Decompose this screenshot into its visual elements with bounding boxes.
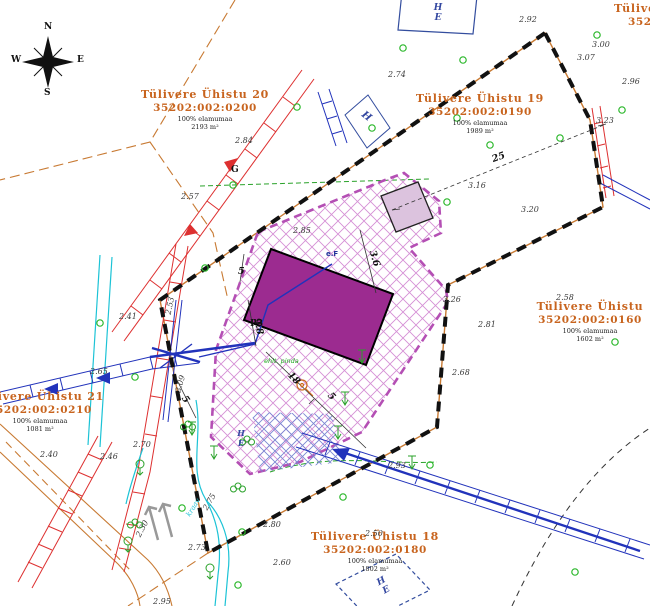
map-labels: N E S W Tülivere Ühistu 20 35202:002:020…: [0, 0, 650, 606]
parcel-name: Tülivere Ühistu 21: [0, 390, 140, 404]
parcel-name: Tülivere Ühistu 20: [120, 88, 290, 102]
elevation-label: 2.57: [181, 192, 199, 201]
elevation-label: 2.73: [188, 543, 206, 552]
parcel-code: 35202:002:0160: [505, 314, 650, 327]
elevation-label: 2.84: [235, 136, 253, 145]
dimension-label: 3.6: [367, 249, 382, 268]
elevation-label: 3.07: [577, 53, 595, 62]
parcel-code: 35202:002:0210: [0, 404, 140, 417]
compass-east-label: E: [77, 55, 84, 65]
parcel-name: Tülivere: [614, 2, 650, 16]
elevation-label: 3.16: [468, 181, 486, 190]
parcel-use: 100% elamumaa: [395, 119, 565, 127]
structure-he-yard-label: H E: [233, 428, 249, 448]
elevation-label: 2.53: [164, 296, 177, 315]
ditch-label-kraav: kraav: [185, 497, 202, 518]
parcel-name: Tülivere Ühistu 19: [395, 92, 565, 106]
elevation-label: 2.58: [556, 293, 574, 302]
parcel-label-21: Tülivere Ühistu 21 35202:002:0210 100% e…: [0, 390, 140, 434]
elevation-label: 2.60: [273, 558, 291, 567]
parcel-code: 35202:002: [614, 16, 650, 29]
elevation-label: 2.65: [90, 367, 108, 376]
parcel-code: 35202:002:0180: [290, 544, 460, 557]
parcel-label-20: Tülivere Ühistu 20 35202:002:0200 100% e…: [120, 88, 290, 132]
dimension-label: 5: [325, 390, 338, 402]
parcel-area: 1081 m²: [0, 425, 140, 433]
elevation-label: 3.20: [521, 205, 539, 214]
elevation-label: 2.68: [452, 368, 470, 377]
parcel-area: 1602 m²: [505, 335, 650, 343]
parcel-name: Tülivere Ühistu: [505, 300, 650, 314]
dimension-label: 9.8: [251, 317, 265, 335]
dimension-label: 25: [491, 150, 507, 165]
elevation-label: 2.81: [478, 320, 496, 329]
elevation-label: 3.00: [592, 40, 610, 49]
building-area-label: ehit. pinda: [264, 357, 299, 365]
dimension-label: 5: [179, 394, 192, 406]
elevation-label: 2.70: [133, 440, 151, 449]
parcel-use: 100% elamumaa: [505, 327, 650, 335]
elevation-label: 2.85: [293, 226, 311, 235]
parcel-label-19: Tülivere Ühistu 19 35202:002:0190 100% e…: [395, 92, 565, 136]
parcel-use: 100% elamumaa: [0, 417, 140, 425]
compass-north-label: N: [44, 22, 52, 32]
elevation-label: 3.09: [174, 374, 187, 394]
structure-h-mid-label: H: [357, 108, 376, 126]
parcel-label-ne: Tülivere 35202:002: [614, 2, 650, 29]
parcel-area: 1989 m²: [395, 127, 565, 135]
elevation-label: 2.75: [201, 492, 218, 512]
structure-he-top-label: H E: [428, 3, 448, 23]
elevation-label: 2.50: [365, 529, 383, 538]
dimension-label: 18: [285, 370, 302, 387]
parcel-label-16: Tülivere Ühistu 35202:002:0160 100% elam…: [505, 300, 650, 344]
parcel-area: 2193 m²: [120, 123, 290, 131]
cadastral-plan: { "map": { "compass": {"n": "N", "e": "E…: [0, 0, 650, 606]
elevation-label: 2.96: [622, 77, 640, 86]
elevation-label: 2.46: [100, 452, 118, 461]
dimension-label: 5: [238, 266, 245, 277]
parcel-use: 100% elamumaa: [120, 115, 290, 123]
elevation-label: 2.95: [153, 597, 171, 606]
geodetic-point-g: G: [231, 165, 239, 175]
utility-label-ef: e.F: [326, 250, 338, 258]
parcel-code: 35202:002:0200: [120, 102, 290, 115]
elevation-label: 2.92: [519, 15, 537, 24]
elevation-label: 2.40: [40, 450, 58, 459]
elevation-label: 3.26: [443, 295, 461, 304]
elevation-label: 2.93: [388, 461, 406, 470]
elevation-label: 3.23: [596, 116, 614, 125]
parcel-code: 35202:002:0190: [395, 106, 565, 119]
map-area: N E S W Tülivere Ühistu 20 35202:002:020…: [0, 0, 650, 606]
elevation-label: 2.74: [388, 70, 406, 79]
structure-he-bottom-label: H E: [370, 572, 397, 599]
compass-south-label: S: [44, 88, 51, 98]
parcel-use: 100% elamumaa: [290, 557, 460, 565]
elevation-label: 2.80: [263, 520, 281, 529]
elevation-label: 2.30: [134, 519, 150, 539]
parcel-area: 1802 m²: [290, 565, 460, 573]
compass-west-label: W: [11, 55, 21, 65]
elevation-label: 2.41: [119, 312, 137, 321]
